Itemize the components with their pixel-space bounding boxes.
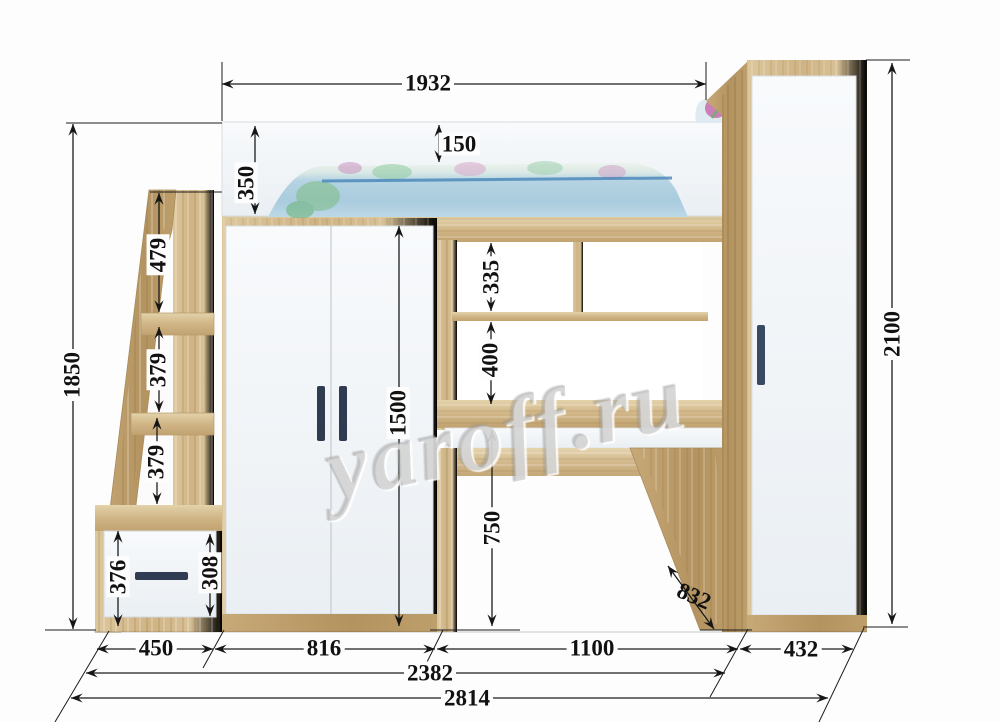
- dim-label-right-wardrobe-width: 432: [781, 638, 822, 661]
- dim-label-wardrobe-height: 1500: [387, 387, 410, 439]
- shelf-board: [452, 312, 708, 321]
- dim-label-stairs-height: 1850: [61, 349, 84, 401]
- shelf-divider: [573, 242, 583, 312]
- dim-label-shelf-gap-bottom: 400: [479, 340, 502, 381]
- dim-label-desk-clearance: 750: [481, 508, 504, 549]
- drawer-handle: [135, 572, 188, 580]
- dim-label-drawer-module: 376: [107, 557, 130, 598]
- wardrobe-handle-right: [339, 386, 347, 441]
- stair-step: [131, 413, 214, 435]
- dim-label-mattress-above-rail: 150: [439, 133, 480, 156]
- desk-front-edge: [445, 428, 735, 448]
- stair-step: [141, 313, 214, 335]
- dim-label-stair-step-2: 379: [145, 442, 168, 483]
- dim-label-bed-length: 1932: [402, 72, 454, 95]
- dim-label-width-no-right-wardrobe: 2382: [404, 662, 456, 685]
- right-wardrobe-door: [752, 76, 856, 615]
- wardrobe-handle-left: [317, 386, 325, 441]
- loft-bed: [222, 97, 747, 229]
- right-wardrobe: [706, 60, 867, 632]
- dim-label-stair-top-gap: 479: [147, 235, 170, 276]
- dim-label-stair-step-1: 379: [147, 350, 170, 391]
- dim-label-desk-width: 1100: [567, 637, 618, 660]
- dim-label-stairs-width: 450: [136, 637, 177, 660]
- dim-label-rail-height: 350: [235, 163, 258, 204]
- dim-label-total-width: 2814: [441, 687, 493, 710]
- dim-label-shelf-gap-top: 335: [480, 257, 503, 298]
- dim-label-drawer-front: 308: [199, 553, 222, 594]
- dim-label-wardrobe-width: 816: [304, 637, 345, 660]
- furniture-dimension-diagram: yaroff.ru 1932 350 150 1850 479 379 379 …: [0, 0, 1000, 722]
- right-wardrobe-handle: [757, 325, 765, 385]
- dim-label-total-height: 2100: [881, 308, 904, 360]
